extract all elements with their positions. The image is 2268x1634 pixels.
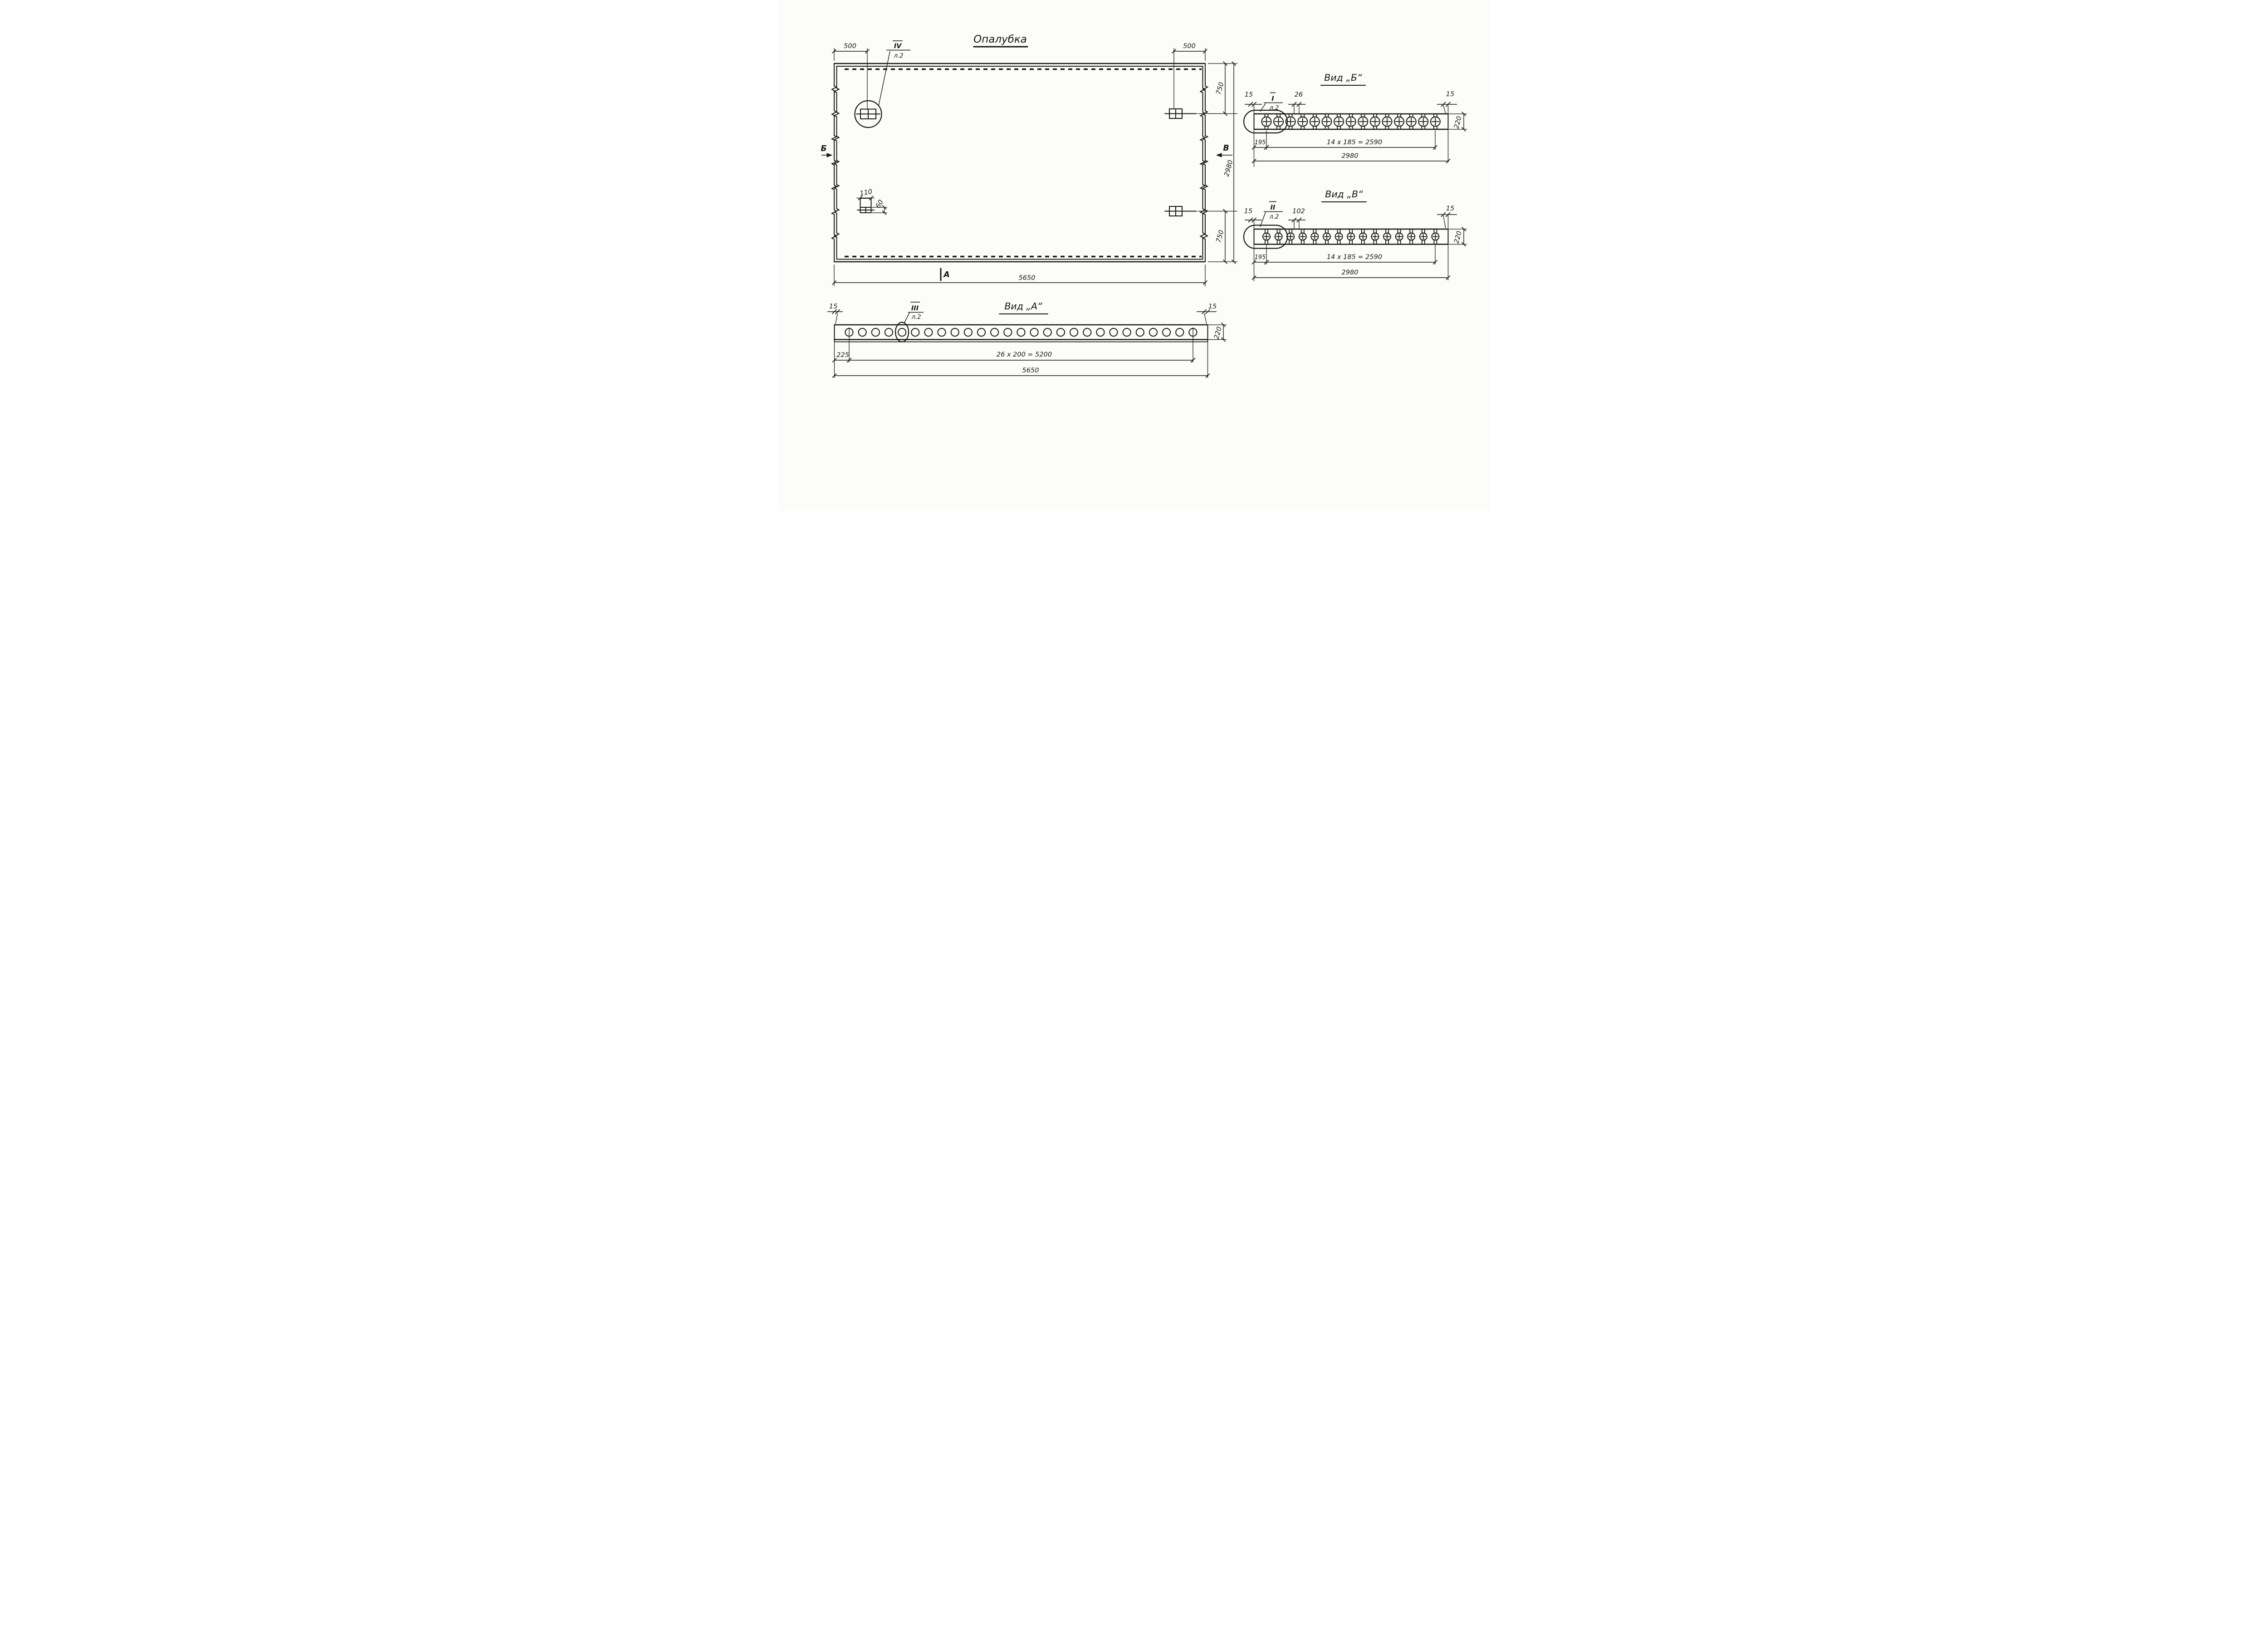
dim-label-220-b: 220 <box>1453 116 1463 130</box>
callout-leader-iii <box>904 313 909 323</box>
hole <box>1043 328 1051 336</box>
view-v-title: Вид „В“ <box>1325 189 1363 200</box>
hole <box>1030 328 1038 336</box>
hole <box>871 328 879 336</box>
callout-ref-iii: III <box>911 305 919 312</box>
view-v: Вид „В“ II л.2 15 102 15 220 <box>1244 189 1467 281</box>
hole-row-v <box>1263 229 1439 245</box>
zigzag-edge <box>832 64 836 262</box>
section-marker-v: В <box>1223 144 1229 153</box>
hole <box>1163 328 1170 336</box>
plan-view: 500 IV л.2 500 750 750 2980 Б <box>821 41 1237 286</box>
page-title: Опалубка <box>973 34 1027 45</box>
view-a-title: Вид „А“ <box>1004 301 1042 312</box>
hole <box>885 328 892 336</box>
dim-label-2980-v: 2980 <box>1341 269 1358 276</box>
hole <box>1096 328 1104 336</box>
dim-label-pitch-v: 14 x 185 = 2590 <box>1326 254 1382 261</box>
hole <box>951 328 958 336</box>
dim-label-15-right-b: 15 <box>1446 91 1454 98</box>
drawing-sheet: Опалубка 500 IV л.2 500 <box>778 0 1490 511</box>
dim-label-225: 225 <box>836 352 849 359</box>
hole <box>977 328 985 336</box>
callout-sheet-i: л.2 <box>1269 105 1279 112</box>
formwork-drawing: Опалубка 500 IV л.2 500 <box>778 0 1490 511</box>
plan-zigzag-edges <box>832 64 1207 262</box>
hole <box>858 328 866 336</box>
dim-label-2980-b: 2980 <box>1341 152 1358 160</box>
dim-label-195-v: 195 <box>1254 254 1266 261</box>
detail-plate <box>860 198 871 207</box>
dim-label-500-left: 500 <box>844 43 856 50</box>
hole <box>1083 328 1091 336</box>
dim-label-5650-plan: 5650 <box>1018 274 1035 282</box>
hole <box>1070 328 1077 336</box>
dim-label-15-right-a: 15 <box>1208 303 1216 310</box>
callout-ref-i: I <box>1271 95 1274 103</box>
hole <box>1149 328 1157 336</box>
dim-label-750-bottom: 750 <box>1215 230 1225 244</box>
dim-label-5650-a: 5650 <box>1022 367 1039 374</box>
ext-line <box>1204 313 1207 324</box>
callout-leader-iv <box>879 51 890 106</box>
hole-row-b <box>1261 114 1440 129</box>
callout-sheet-ii: л.2 <box>1269 214 1279 220</box>
dim-label-110: 110 <box>859 188 873 198</box>
zigzag-edge <box>834 66 839 259</box>
dim-label-60: 60 <box>874 199 885 210</box>
hole <box>964 328 972 336</box>
hole <box>1110 328 1117 336</box>
dim-label-15-right-v: 15 <box>1446 205 1454 212</box>
ext-line <box>1443 105 1446 113</box>
dim-label-15-left-a: 15 <box>829 303 837 310</box>
hole <box>924 328 932 336</box>
dim-label-220-v: 220 <box>1453 230 1463 245</box>
hole <box>1004 328 1012 336</box>
hole <box>1136 328 1144 336</box>
hole <box>1123 328 1130 336</box>
dim-label-pitch-b: 14 x 185 = 2590 <box>1326 139 1382 146</box>
ext-line <box>836 313 838 324</box>
hole <box>1176 328 1183 336</box>
callout-sheet-iv: л.2 <box>893 53 903 59</box>
dim-label-2980-plan: 2980 <box>1223 159 1234 177</box>
dim-label-15-left-v: 15 <box>1244 208 1252 215</box>
hole <box>938 328 945 336</box>
ext-line <box>1443 215 1446 228</box>
section-marker-b: Б <box>821 144 826 153</box>
dim-label-500-right: 500 <box>1183 43 1196 50</box>
callout-ref-ii: II <box>1270 204 1275 211</box>
section-marker-a: А <box>943 270 950 279</box>
hole-row-a <box>845 328 1197 336</box>
dim-label-102-v: 102 <box>1292 208 1305 215</box>
dim-label-220-a: 220 <box>1213 326 1223 340</box>
hole <box>911 328 919 336</box>
callout-ref-iv: IV <box>894 43 902 50</box>
callout-leader-ii <box>1260 212 1266 227</box>
dim-label-195-b: 195 <box>1254 139 1266 146</box>
hole <box>1017 328 1025 336</box>
view-a: Вид „А“ III л.2 15 15 220 225 26 <box>827 301 1227 378</box>
hole <box>991 328 998 336</box>
callout-sheet-iii: л.2 <box>911 314 921 321</box>
dim-label-750-top: 750 <box>1215 82 1225 96</box>
view-b: Вид „Б“ I л.2 15 26 15 220 <box>1244 72 1467 167</box>
hole <box>898 328 906 336</box>
dim-label-26-b: 26 <box>1294 91 1302 98</box>
hole <box>1056 328 1064 336</box>
view-b-title: Вид „Б“ <box>1324 72 1362 83</box>
dim-label-15-left-b: 15 <box>1244 91 1252 98</box>
dim-label-pitch-a: 26 x 200 = 5200 <box>996 351 1051 358</box>
